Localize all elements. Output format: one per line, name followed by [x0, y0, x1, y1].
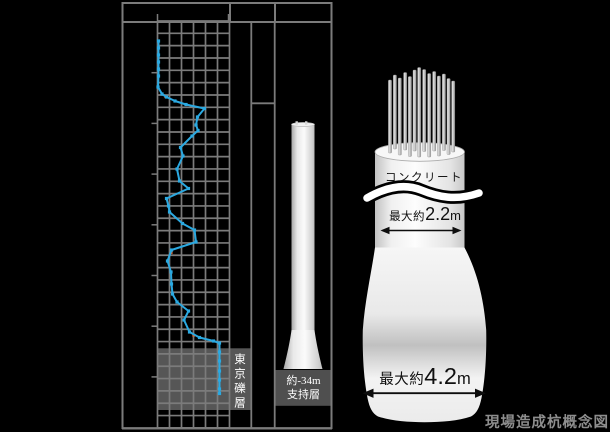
n-value-marker: [212, 339, 215, 342]
n-value-marker: [170, 282, 173, 285]
n-value-marker: [198, 336, 201, 339]
bottom-width-prefix: 最大約: [379, 368, 424, 389]
n-value-marker: [187, 187, 190, 190]
n-value-marker: [165, 197, 168, 200]
rebar: [393, 75, 396, 149]
rebar: [437, 76, 440, 156]
n-value-marker: [157, 60, 160, 63]
rebar: [413, 70, 416, 151]
n-value-marker: [218, 359, 221, 362]
n-value-marker: [182, 318, 185, 321]
n-value-marker: [196, 129, 199, 132]
small-pile-rebar-stub: [296, 121, 298, 124]
support-layer-label: 約-34m 支持層: [275, 370, 332, 406]
small-pile-rebar-stub: [305, 121, 307, 124]
n-value-marker: [218, 387, 221, 390]
n-value-marker: [181, 154, 184, 157]
rebar: [433, 72, 436, 152]
n-value-marker: [167, 204, 170, 207]
rebar: [452, 81, 455, 152]
top-width-label: 最大約 2.2 m: [389, 204, 461, 225]
n-value-polyline: [158, 41, 220, 394]
rebar: [418, 68, 421, 158]
n-value-marker: [160, 92, 163, 95]
rebar: [442, 74, 445, 151]
n-value-marker: [157, 74, 160, 77]
n-value-marker: [156, 85, 159, 88]
n-value-marker: [193, 228, 196, 231]
diagram-scene: [0, 0, 610, 432]
n-value-marker: [169, 270, 172, 273]
support-depth-text: 約-34m: [286, 374, 320, 388]
top-width-prefix: 最大約: [389, 208, 425, 224]
figure-caption: 現場造成杭概念図: [485, 411, 609, 432]
n-value-marker: [218, 350, 221, 353]
bottom-width-unit: m: [457, 370, 471, 389]
bottom-width-label: 最大約 4.2 m: [379, 363, 470, 390]
small-pile-top-face: [292, 123, 315, 127]
rebar: [423, 70, 426, 152]
n-value-marker: [196, 115, 199, 118]
top-width-unit: m: [450, 208, 461, 223]
n-value-marker: [218, 341, 221, 344]
gravel-layer-label: 東京礫層: [231, 353, 247, 411]
rebar: [404, 73, 407, 151]
n-value-marker: [165, 95, 168, 98]
pile-column-small: [284, 121, 323, 369]
n-value-marker: [187, 309, 190, 312]
concrete-label: コンクリート: [385, 169, 463, 185]
rebar: [398, 78, 401, 155]
top-width-value: 2.2: [425, 204, 450, 225]
bottom-width-value: 4.2: [424, 363, 457, 390]
pile-bell: [363, 248, 487, 423]
n-value-marker: [166, 259, 169, 262]
n-value-marker: [179, 146, 182, 149]
rebar: [408, 77, 411, 157]
n-value-marker: [218, 378, 221, 381]
rebar: [428, 74, 431, 158]
rebar: [447, 79, 450, 155]
n-value-marker: [157, 46, 160, 49]
n-value-marker: [171, 292, 174, 295]
n-value-marker: [218, 369, 221, 372]
n-value-marker: [157, 67, 160, 70]
n-value-marker: [170, 248, 173, 251]
n-value-marker: [157, 53, 160, 56]
n-value-marker: [168, 210, 171, 213]
n-value-marker: [178, 179, 181, 182]
support-layer-text: 支持層: [287, 388, 320, 402]
n-value-marker: [218, 392, 221, 395]
rebar: [388, 80, 391, 153]
small-pile-bell: [284, 330, 323, 369]
n-value-marker: [175, 167, 178, 170]
n-value-marker: [173, 99, 176, 102]
n-value-marker: [184, 103, 187, 106]
n-value-marker: [194, 240, 197, 243]
n-value-marker: [181, 222, 184, 225]
n-value-marker: [188, 330, 191, 333]
pile-concept-diagram: コンクリート 最大約 2.2 m 最大約 4.2 m 東京礫層 約-34m 支持…: [0, 0, 610, 432]
n-value-marker: [190, 134, 193, 137]
n-value-marker: [203, 107, 206, 110]
n-value-marker: [157, 39, 160, 42]
n-value-marker: [194, 123, 197, 126]
small-pile-shaft: [292, 125, 315, 331]
n-value-marker: [175, 300, 178, 303]
